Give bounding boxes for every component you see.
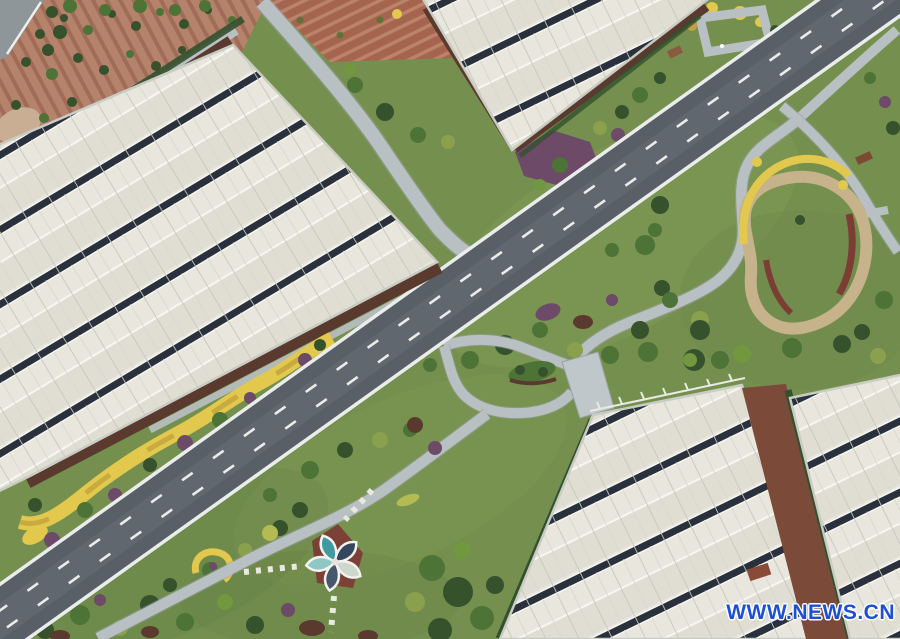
news-watermark: WWW.NEWS.CN: [726, 601, 895, 625]
aerial-photo-scene: [0, 0, 900, 639]
aerial-photo-frame: WWW.NEWS.CN: [0, 0, 900, 639]
person-dot: [720, 44, 724, 48]
